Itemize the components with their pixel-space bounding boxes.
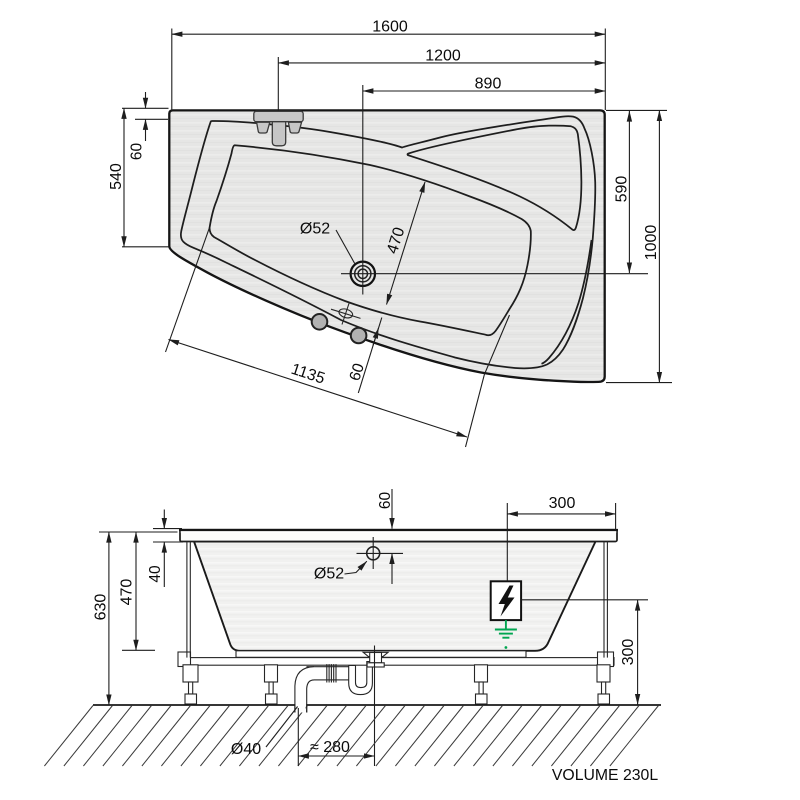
svg-text:1135: 1135 bbox=[289, 361, 327, 388]
svg-text:300: 300 bbox=[549, 495, 576, 512]
svg-text:60: 60 bbox=[347, 361, 369, 383]
svg-text:470: 470 bbox=[119, 579, 136, 606]
svg-text:300: 300 bbox=[620, 639, 637, 666]
svg-text:60: 60 bbox=[377, 492, 394, 510]
svg-text:890: 890 bbox=[475, 75, 502, 92]
svg-text:Ø40: Ø40 bbox=[231, 741, 261, 758]
svg-text:540: 540 bbox=[108, 163, 125, 190]
svg-text:≈ 280: ≈ 280 bbox=[310, 739, 350, 756]
svg-text:1200: 1200 bbox=[425, 47, 461, 64]
svg-text:590: 590 bbox=[614, 176, 631, 203]
svg-text:60: 60 bbox=[129, 143, 146, 161]
svg-text:1600: 1600 bbox=[372, 19, 408, 36]
svg-text:630: 630 bbox=[93, 594, 110, 621]
svg-text:1000: 1000 bbox=[643, 225, 660, 261]
svg-text:Ø52: Ø52 bbox=[314, 566, 344, 583]
svg-text:40: 40 bbox=[147, 565, 164, 583]
svg-text:VOLUME 230L: VOLUME 230L bbox=[552, 767, 658, 784]
svg-text:Ø52: Ø52 bbox=[300, 221, 330, 238]
